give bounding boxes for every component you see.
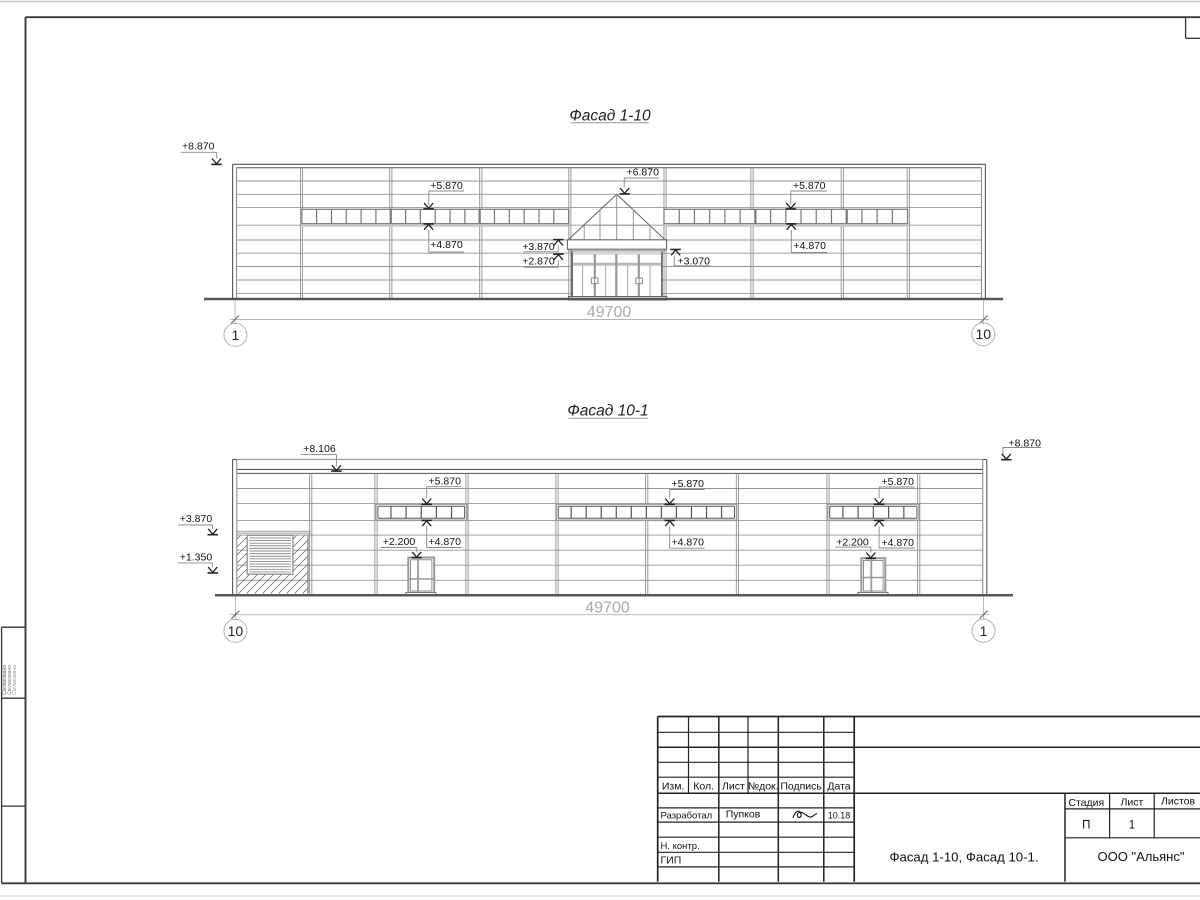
svg-text:Лист: Лист bbox=[1120, 797, 1143, 809]
svg-text:49700: 49700 bbox=[587, 304, 632, 321]
svg-text:+5.870: +5.870 bbox=[430, 180, 463, 192]
svg-text:Н. контр.: Н. контр. bbox=[661, 841, 700, 852]
svg-text:10: 10 bbox=[976, 326, 992, 342]
svg-text:+5.870: +5.870 bbox=[793, 180, 826, 192]
svg-text:+5.870: +5.870 bbox=[882, 476, 915, 488]
svg-text:Фасад 1-10: Фасад 1-10 bbox=[569, 108, 651, 125]
svg-text:Кол.: Кол. bbox=[693, 781, 714, 793]
svg-text:№док.: №док. bbox=[748, 781, 779, 793]
svg-text:49700: 49700 bbox=[585, 600, 630, 617]
svg-text:+3.870: +3.870 bbox=[522, 241, 555, 253]
svg-text:Лист: Лист bbox=[722, 781, 745, 793]
svg-text:+4.870: +4.870 bbox=[794, 240, 827, 252]
svg-text:+6.870: +6.870 bbox=[627, 167, 660, 179]
svg-text:Дата: Дата bbox=[827, 781, 850, 793]
svg-text:+5.870: +5.870 bbox=[429, 476, 462, 488]
svg-text:1: 1 bbox=[980, 623, 988, 639]
svg-text:+5.870: +5.870 bbox=[672, 478, 705, 490]
svg-text:Фасад 1-10, Фасад 10-1.: Фасад 1-10, Фасад 10-1. bbox=[889, 849, 1038, 864]
svg-text:+2.870: +2.870 bbox=[522, 256, 555, 268]
svg-text:+4.870: +4.870 bbox=[672, 536, 705, 548]
svg-text:Фасад 10-1: Фасад 10-1 bbox=[567, 403, 648, 420]
svg-text:+2.200: +2.200 bbox=[383, 536, 416, 548]
svg-text:ООО "Альянс": ООО "Альянс" bbox=[1098, 849, 1185, 864]
svg-text:Изм.: Изм. bbox=[662, 781, 685, 793]
svg-text:+8.106: +8.106 bbox=[303, 443, 336, 455]
svg-text:+3.870: +3.870 bbox=[180, 513, 213, 525]
svg-text:Подпись: Подпись bbox=[780, 781, 822, 793]
svg-text:Разработал: Разработал bbox=[661, 811, 713, 822]
svg-text:ГИП: ГИП bbox=[661, 855, 682, 867]
svg-text:Согласовано: Согласовано bbox=[12, 665, 18, 695]
svg-text:+4.870: +4.870 bbox=[430, 239, 463, 251]
svg-text:1: 1 bbox=[1129, 819, 1135, 831]
svg-text:Стадия: Стадия bbox=[1068, 797, 1104, 809]
svg-text:+8.870: +8.870 bbox=[182, 141, 215, 153]
svg-text:Листов: Листов bbox=[1161, 796, 1196, 808]
svg-text:Пупков: Пупков bbox=[726, 809, 761, 821]
svg-text:+4.870: +4.870 bbox=[429, 536, 462, 548]
svg-text:+4.870: +4.870 bbox=[882, 537, 915, 549]
svg-text:10.18: 10.18 bbox=[828, 810, 851, 820]
svg-text:+2.200: +2.200 bbox=[836, 536, 869, 548]
svg-text:1: 1 bbox=[232, 327, 240, 343]
svg-text:10: 10 bbox=[228, 623, 244, 639]
svg-text:П: П bbox=[1082, 820, 1090, 832]
svg-text:+1.350: +1.350 bbox=[180, 551, 213, 563]
